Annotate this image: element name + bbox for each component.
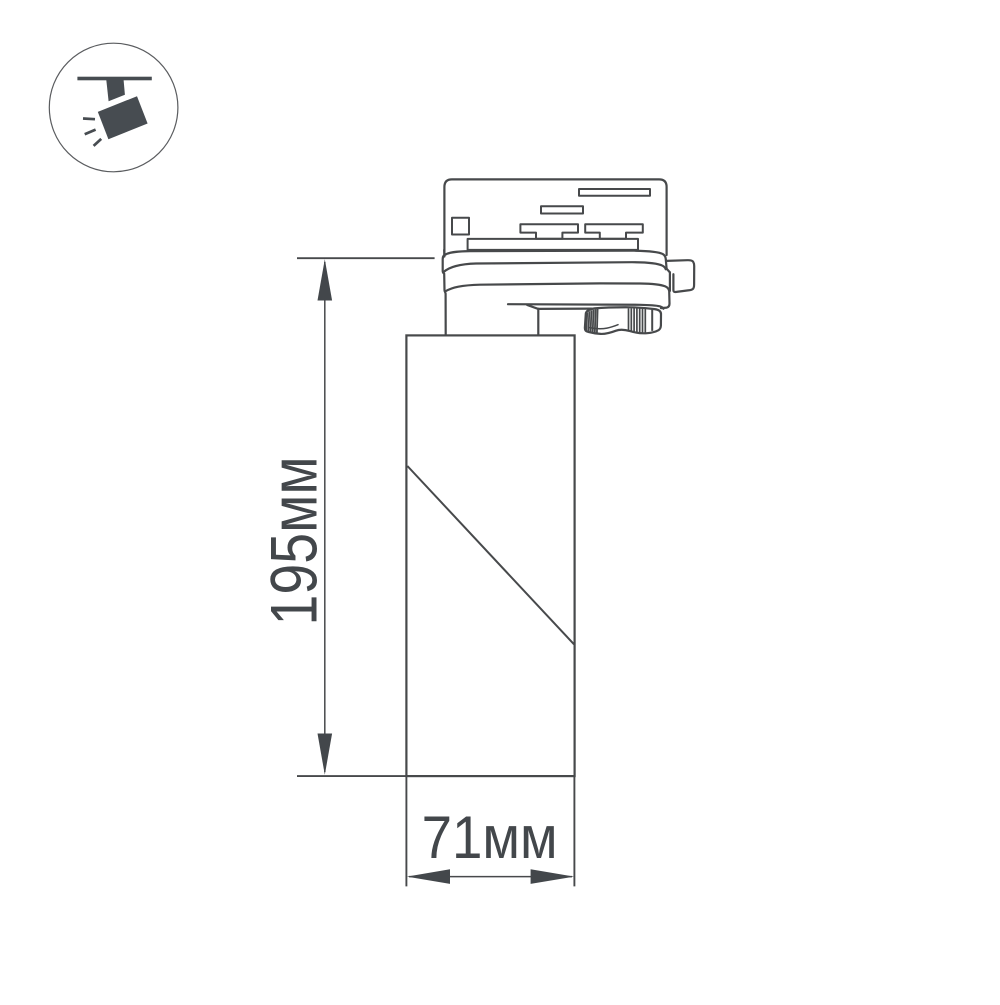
svg-text:71мм: 71мм bbox=[422, 803, 558, 871]
svg-text:195мм: 195мм bbox=[256, 457, 330, 626]
